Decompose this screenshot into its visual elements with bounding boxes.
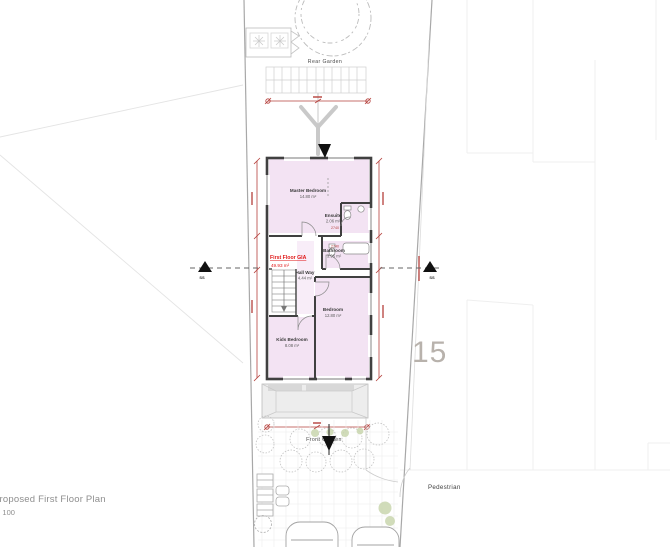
room-label-bathroom: Bathroom bbox=[323, 248, 345, 253]
section-marker-right-icon bbox=[423, 261, 437, 272]
room-area-master-bedroom: 14.80 m² bbox=[300, 194, 317, 199]
section-marker-left-label: SS bbox=[199, 275, 205, 280]
small-tree-symbol bbox=[255, 516, 272, 533]
room-label-bedroom: Bedroom bbox=[323, 307, 343, 312]
plant-symbol bbox=[253, 35, 286, 47]
room-area-ensuite: 2.06 m² bbox=[326, 219, 341, 224]
adjacent-boundary-diagonals bbox=[0, 85, 243, 363]
staircase bbox=[272, 270, 296, 312]
wall-dimension: 2740 bbox=[331, 245, 339, 249]
decking-grid bbox=[266, 67, 366, 93]
room-label-hall-way: Hall Way bbox=[296, 270, 315, 275]
driveway bbox=[255, 516, 400, 547]
section-marker-left-icon bbox=[198, 261, 212, 272]
wall-dimension: 2740 bbox=[331, 226, 339, 230]
building-floor-plan: Master Bedroom 14.80 m² Ensuite 2.06 m² … bbox=[264, 144, 374, 382]
rear-garden: Rear Garden bbox=[246, 0, 371, 154]
neighbor-plot-outlines bbox=[400, 0, 670, 470]
parked-car bbox=[286, 522, 338, 547]
pedestrian-label: Pedestrian bbox=[428, 484, 461, 491]
gia-label: First Floor GIA bbox=[270, 255, 307, 261]
room-area-bathroom: 3.95 m² bbox=[327, 254, 342, 259]
drawing-title: Proposed First Floor Plan bbox=[0, 494, 106, 505]
outbuilding bbox=[246, 28, 299, 57]
rear-garden-label: Rear Garden bbox=[308, 59, 342, 65]
ground-floor-canopy-roof bbox=[262, 384, 368, 418]
drawing-scale: 1 : 100 bbox=[0, 508, 15, 517]
tree-canopy-symbol bbox=[295, 0, 371, 56]
room-area-hall-way: 4.44 m² bbox=[298, 276, 313, 281]
parked-car bbox=[352, 527, 399, 547]
room-label-kids-bedroom: Kids Bedroom bbox=[276, 337, 307, 342]
section-marker-right-label: SS bbox=[429, 275, 435, 280]
front-garden: Front Garden bbox=[256, 384, 410, 547]
rear-tree-branch-symbol bbox=[301, 107, 336, 154]
room-label-master-bedroom: Master Bedroom bbox=[290, 188, 326, 193]
site-plan-drawing: Rear Garden SS bbox=[0, 0, 670, 547]
room-label-ensuite: Ensuite bbox=[325, 213, 342, 218]
house-number-label: 15 bbox=[412, 336, 447, 369]
gia-area: 49.93 m² bbox=[271, 263, 290, 268]
floor-plan-canvas: Rear Garden SS bbox=[0, 0, 670, 547]
room-area-kids-bedroom: 8.08 m² bbox=[285, 343, 300, 348]
room-area-bedroom: 12.80 m² bbox=[325, 313, 342, 318]
